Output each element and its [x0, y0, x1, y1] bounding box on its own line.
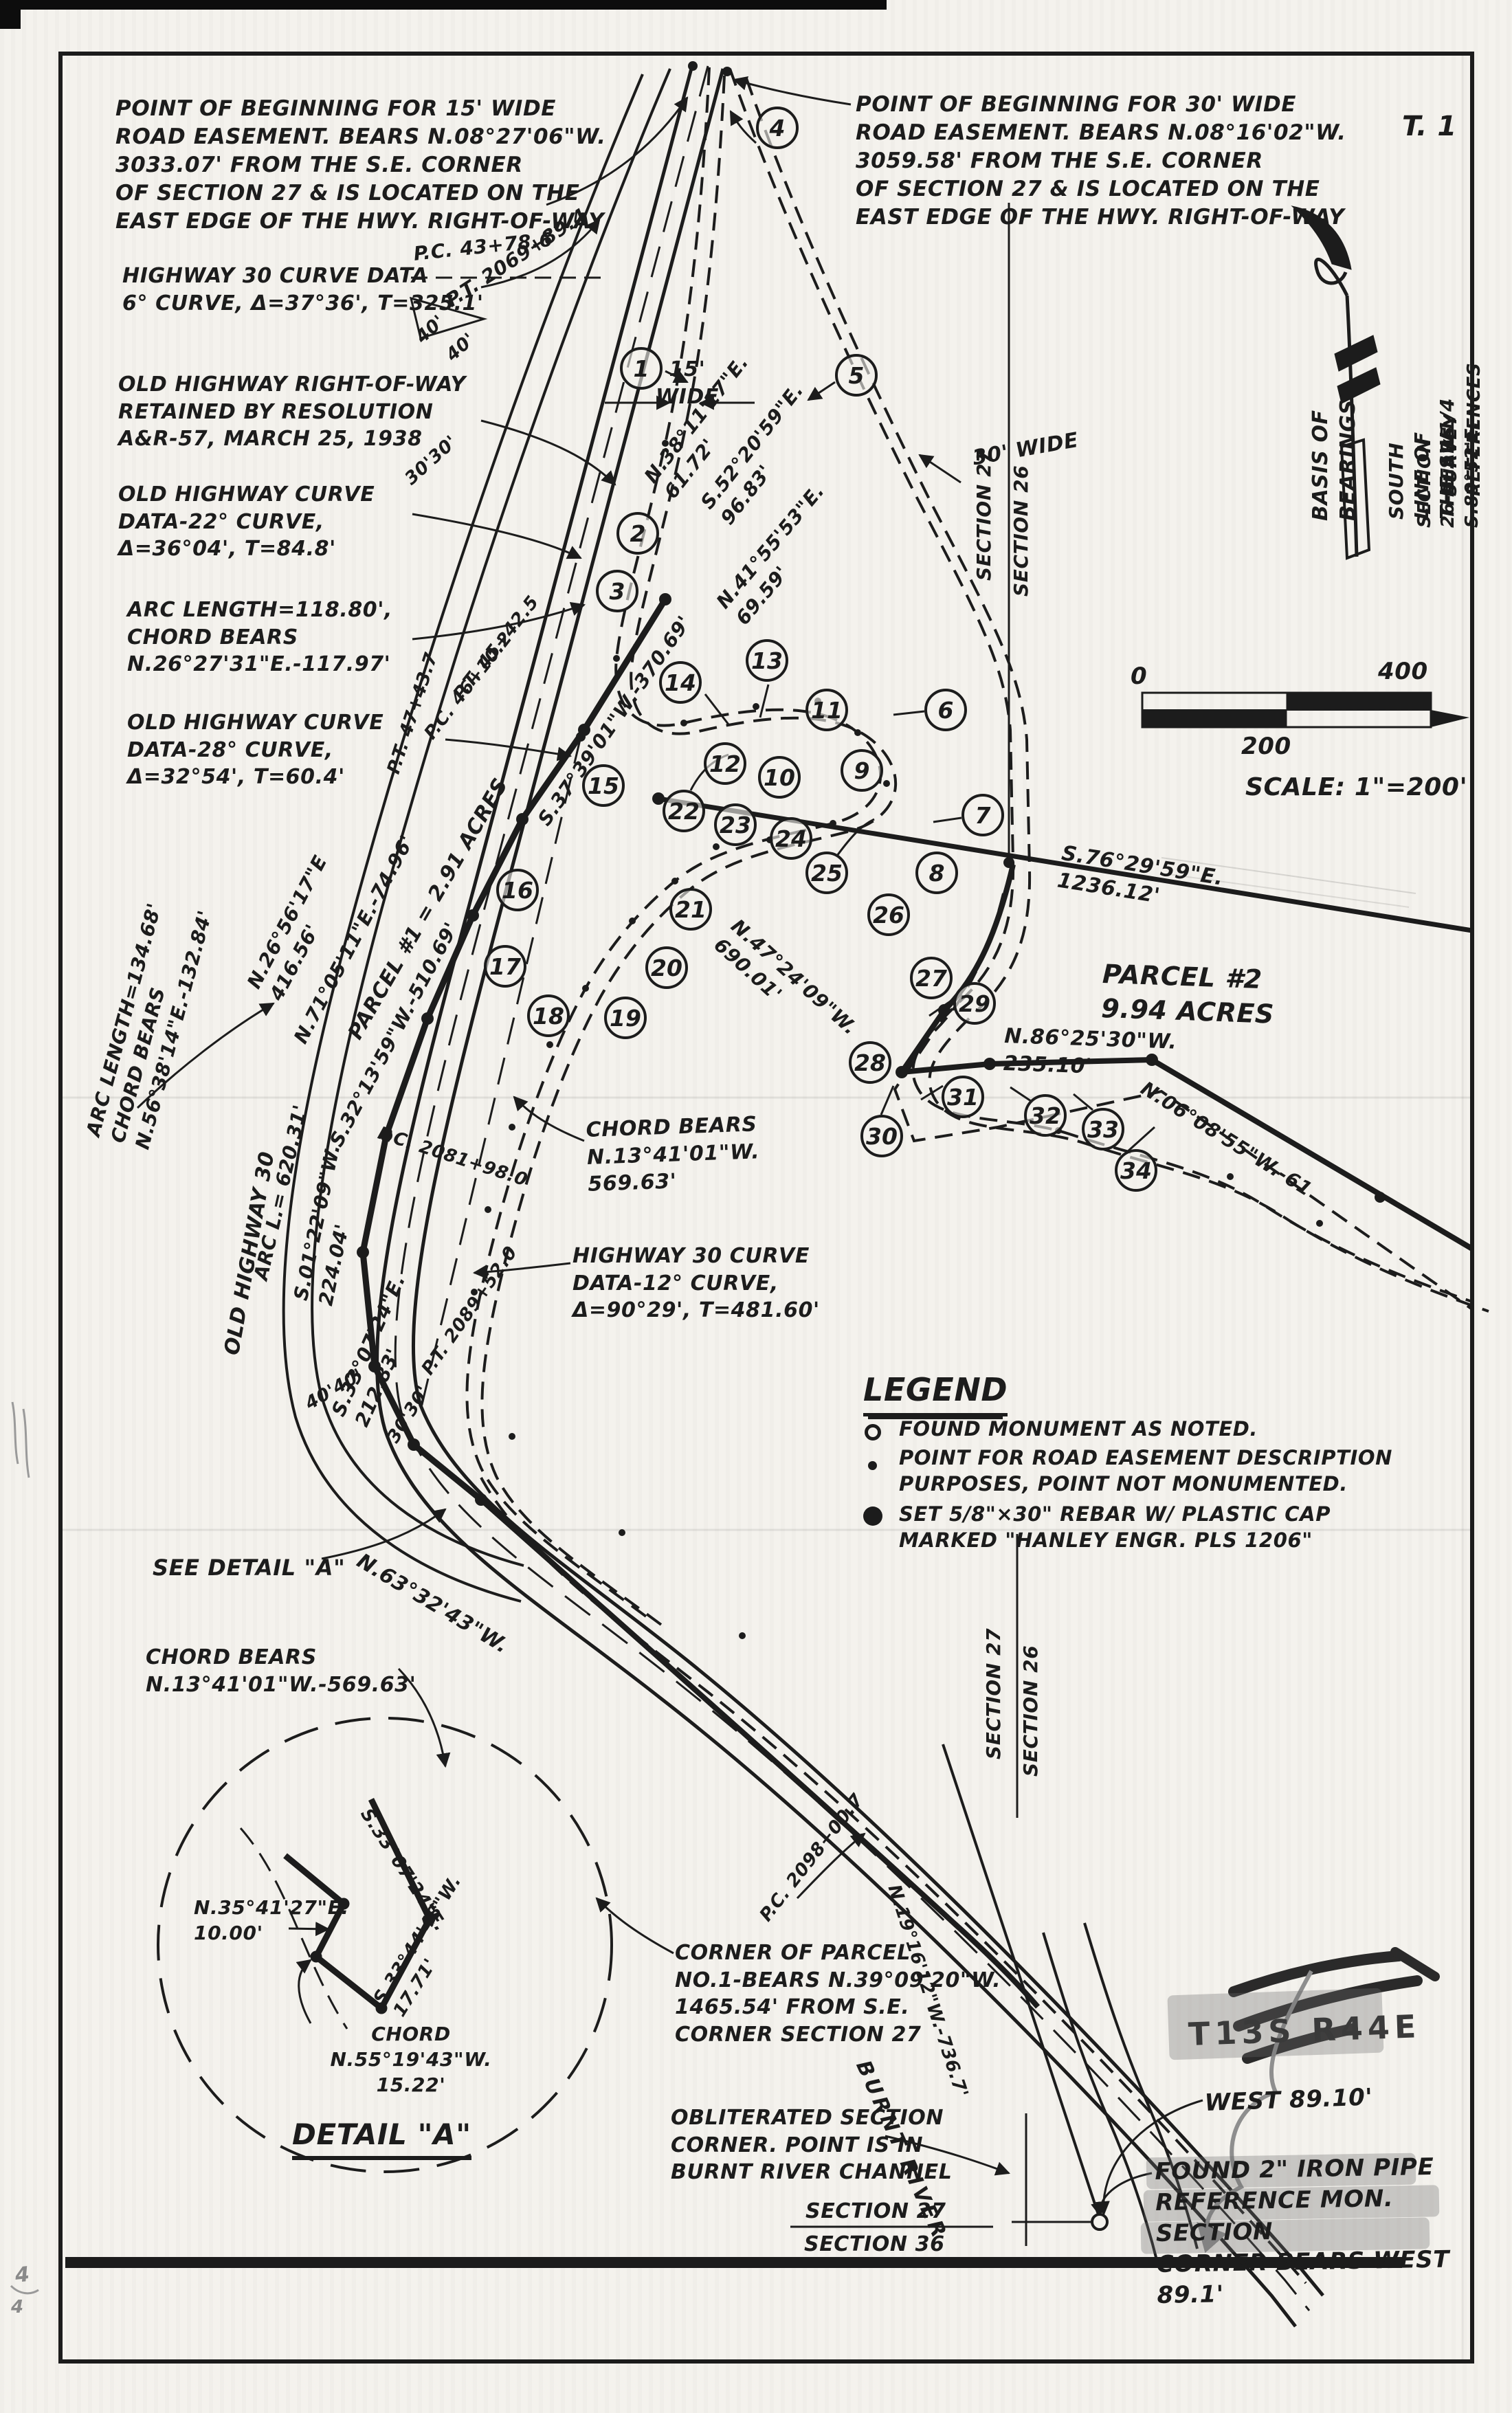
- point-balloon-14: 14: [659, 661, 702, 704]
- point-balloon-23: 23: [714, 803, 757, 846]
- note-old-curve-22: OLD HIGHWAY CURVE DATA-22° CURVE, Δ=36°0…: [118, 481, 375, 563]
- basis-of-bearings: BASIS OF BEARINGS: [1307, 316, 1361, 521]
- note-t13s-r44e: T13S R44E: [1188, 2005, 1421, 2055]
- point-balloon-17: 17: [484, 945, 526, 988]
- point-balloon-18: 18: [527, 994, 570, 1037]
- township-tag: T. 1: [1402, 109, 1457, 145]
- point-balloon-31: 31: [942, 1076, 984, 1118]
- note-pob-30: POINT OF BEGINNING FOR 30' WIDE ROAD EAS…: [856, 91, 1346, 232]
- point-balloon-7: 7: [961, 794, 1004, 836]
- monument-open-circle: [1092, 2214, 1107, 2229]
- pencil-mark-a: 4: [14, 2261, 32, 2290]
- point-balloon-12: 12: [704, 742, 746, 785]
- point-balloon-29: 29: [953, 982, 996, 1025]
- note-hwy30-curve-6: HIGHWAY 30 CURVE DATA 6° CURVE, Δ=37°36'…: [122, 263, 484, 317]
- point-balloon-30: 30: [860, 1115, 903, 1157]
- point-balloon-28: 28: [849, 1041, 891, 1084]
- point-balloon-25: 25: [805, 852, 848, 894]
- point-balloon-5: 5: [835, 354, 878, 397]
- scale-bar: [1142, 693, 1469, 727]
- section-26-lower: SECTION 26: [1019, 1645, 1044, 1777]
- note-see-detail-a: SEE DETAIL "A": [153, 1553, 345, 1582]
- legend-title: LEGEND: [863, 1369, 1008, 1416]
- point-balloon-4: 4: [756, 107, 799, 149]
- legend-item-set-rebar: SET 5/8"×30" REBAR W/ PLASTIC CAP MARKED…: [899, 1501, 1331, 1554]
- note-old-row: OLD HIGHWAY RIGHT-OF-WAY RETAINED BY RES…: [118, 371, 466, 453]
- easement-point-icon: [868, 1461, 877, 1470]
- detail-chord: CHORD N.55°19'43"W. 15.22': [308, 2022, 514, 2098]
- note-corner-parcel-1: CORNER OF PARCEL NO.1-BEARS N.39°09'20"W…: [675, 1939, 1001, 2048]
- scale-tick-200: 200: [1241, 731, 1291, 762]
- legend-item-found-monument: FOUND MONUMENT AS NOTED.: [899, 1416, 1258, 1442]
- note-found-pipe: FOUND 2" IRON PIPE REFERENCE MON. SECTIO…: [1155, 2150, 1512, 2311]
- note-pob-15: POINT OF BEGINNING FOR 15' WIDE ROAD EAS…: [115, 95, 606, 236]
- note-chord-569: CHORD BEARS N.13°41'01"W. 569.63': [586, 1111, 761, 1198]
- point-balloon-9: 9: [841, 749, 883, 792]
- section-26-upper: SECTION 26: [1009, 465, 1034, 597]
- point-balloon-8: 8: [915, 852, 958, 894]
- point-balloon-3: 3: [596, 570, 638, 612]
- point-balloon-26: 26: [867, 893, 910, 936]
- legend-item-easement-point: POINT FOR ROAD EASEMENT DESCRIPTION PURP…: [899, 1445, 1392, 1498]
- point-balloon-21: 21: [669, 888, 712, 931]
- point-balloon-13: 13: [746, 639, 788, 682]
- point-balloon-2: 2: [616, 512, 659, 555]
- point-balloon-15: 15: [582, 764, 625, 807]
- set-rebar-icon: [863, 1506, 882, 1526]
- detail-bearing-n3541: N.35°41'27"E. 10.00': [194, 1895, 349, 1946]
- section-27-lower: SECTION 27: [981, 1628, 1007, 1759]
- note-arc-118: ARC LENGTH=118.80', CHORD BEARS N.26°27'…: [127, 597, 392, 678]
- scale-tick-0: 0: [1131, 661, 1147, 692]
- point-balloon-24: 24: [770, 817, 812, 860]
- point-balloon-32: 32: [1024, 1094, 1067, 1137]
- point-balloon-27: 27: [910, 957, 953, 999]
- found-monument-icon: [865, 1424, 881, 1441]
- survey-plat-sheet: POINT OF BEGINNING FOR 15' WIDE ROAD EAS…: [0, 0, 1512, 2413]
- scale-text: SCALE: 1"=200': [1245, 771, 1467, 804]
- scale-tick-400: 400: [1378, 656, 1428, 687]
- point-balloon-1: 1: [620, 347, 663, 390]
- detail-a-title: DETAIL "A": [292, 2115, 471, 2160]
- note-chord-569-b: CHORD BEARS N.13°41'01"W.-569.63': [146, 1644, 416, 1698]
- point-balloon-16: 16: [496, 869, 539, 911]
- note-hwy30-curve-12: HIGHWAY 30 CURVE DATA-12° CURVE, Δ=90°29…: [572, 1243, 820, 1324]
- note-old-curve-28: OLD HIGHWAY CURVE DATA-28° CURVE, Δ=32°5…: [127, 709, 383, 791]
- basis-survey-references: SURVEY REFERENCES: [1439, 363, 1487, 496]
- point-balloon-19: 19: [604, 997, 647, 1039]
- bearing-n8625: N.86°25'30"W. 235.10': [1003, 1023, 1177, 1083]
- note-west-89: WEST 89.10': [1204, 2082, 1373, 2118]
- point-balloon-6: 6: [924, 689, 967, 731]
- section-27-upper: SECTION 27: [972, 449, 997, 581]
- point-balloon-22: 22: [663, 790, 705, 832]
- point-balloon-10: 10: [758, 756, 801, 799]
- pencil-mark-b: 4: [11, 2295, 24, 2319]
- point-balloon-34: 34: [1115, 1149, 1157, 1192]
- point-balloon-33: 33: [1082, 1108, 1124, 1150]
- point-balloon-11: 11: [805, 689, 848, 731]
- point-balloon-20: 20: [645, 946, 688, 989]
- parcel-2-label: PARCEL #2 9.94 ACRES: [1100, 957, 1276, 1032]
